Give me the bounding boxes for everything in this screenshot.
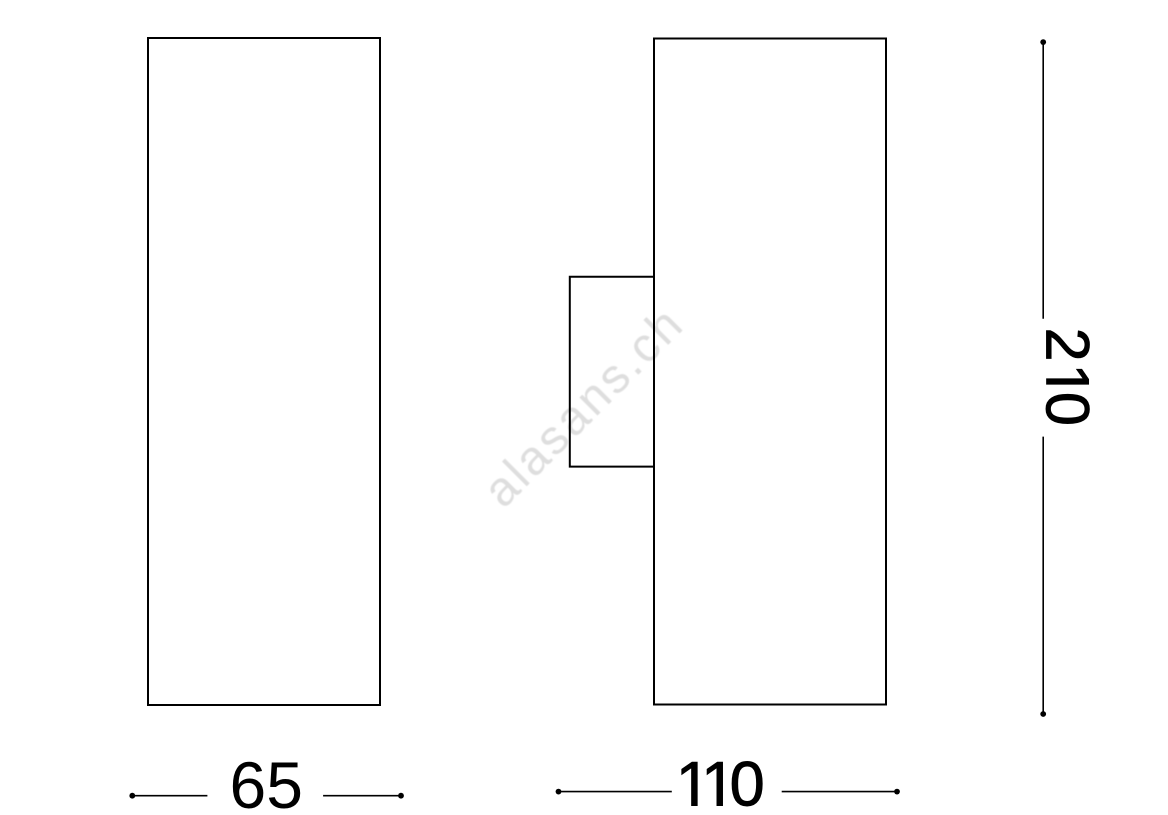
svg-text:65: 65 bbox=[229, 748, 302, 815]
svg-text:0: 0 bbox=[730, 750, 765, 815]
svg-text:2: 2 bbox=[1034, 328, 1102, 362]
svg-text:0: 0 bbox=[1034, 392, 1102, 426]
